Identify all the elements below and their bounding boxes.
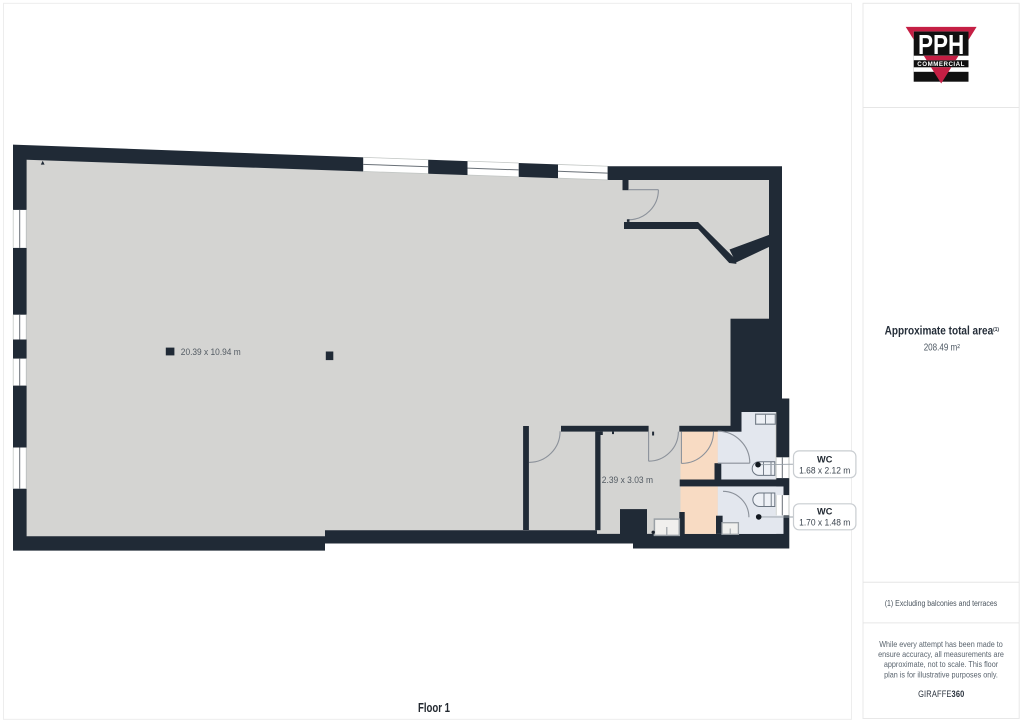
svg-text:1.68 x 2.12 m: 1.68 x 2.12 m [799, 465, 850, 475]
svg-text:While every attempt has been m: While every attempt has been made to [879, 639, 1003, 649]
svg-text:WC: WC [817, 455, 833, 465]
svg-text:1.70 x 1.48 m: 1.70 x 1.48 m [799, 517, 850, 527]
svg-text:COMMERCIAL: COMMERCIAL [917, 61, 965, 68]
svg-text:Floor 1: Floor 1 [418, 702, 450, 716]
svg-text:2.39 x 3.03 m: 2.39 x 3.03 m [602, 475, 653, 485]
svg-text:plan is for illustrative purpo: plan is for illustrative purposes only. [884, 670, 998, 680]
svg-text:ensure accuracy, all measureme: ensure accuracy, all measurements are [878, 649, 1004, 659]
svg-text:Approximate total area(1): Approximate total area(1) [885, 325, 1000, 338]
svg-text:WC: WC [817, 507, 833, 517]
svg-text:208.49 m²: 208.49 m² [924, 342, 960, 353]
svg-text:GIRAFFE360: GIRAFFE360 [918, 688, 964, 699]
svg-text:approximate, not to scale. Thi: approximate, not to scale. This floor [884, 660, 999, 670]
svg-text:(1) Excluding balconies and te: (1) Excluding balconies and terraces [885, 598, 998, 608]
svg-text:20.39 x 10.94 m: 20.39 x 10.94 m [181, 347, 241, 357]
svg-text:PPH: PPH [918, 30, 964, 61]
